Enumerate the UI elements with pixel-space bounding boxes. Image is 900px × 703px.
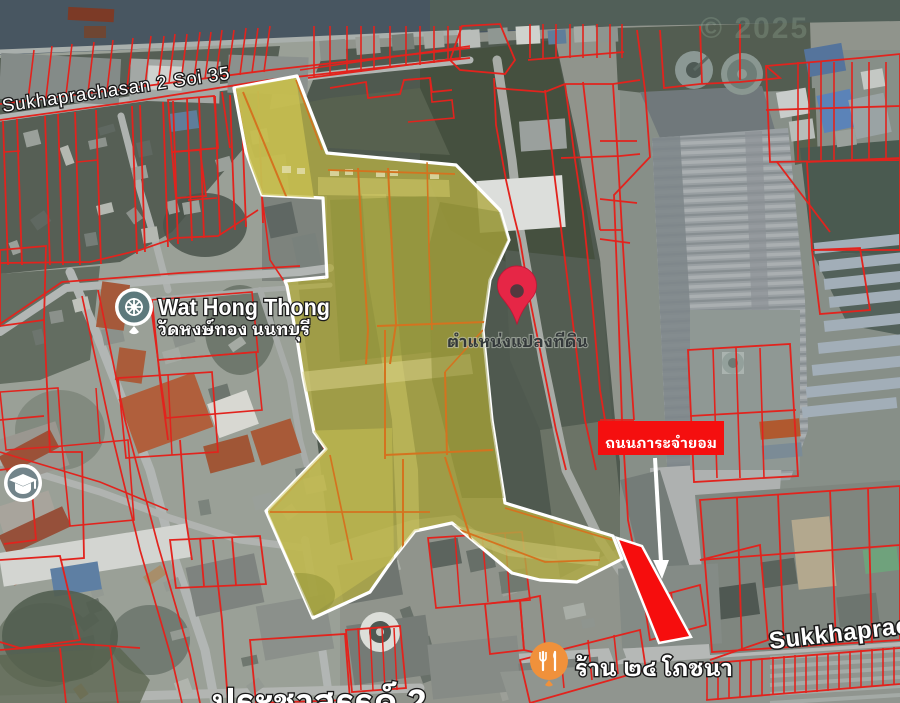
svg-text:Wat Hong Thong: Wat Hong Thong [158,294,330,320]
svg-text:© 2025: © 2025 [700,12,809,45]
